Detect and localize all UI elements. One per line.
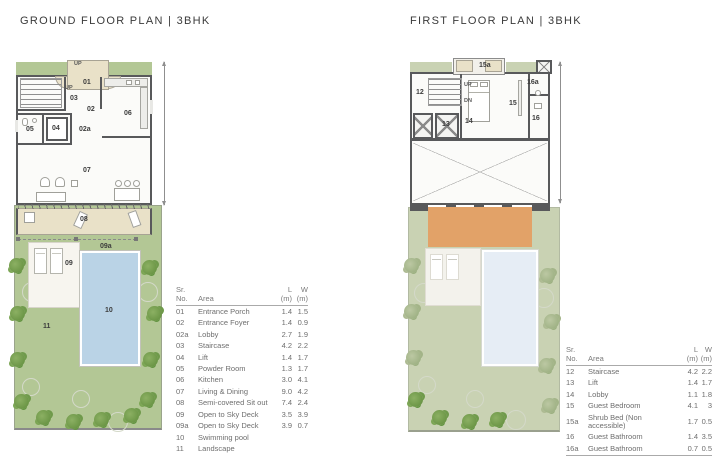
- legend-cell: 1.8: [698, 389, 712, 400]
- legend-cell: Open to Sky Deck: [198, 421, 272, 432]
- first-floor-plan: 15a 12 UP DN 13 14 15 16 16a: [408, 58, 570, 458]
- room-label: 03: [70, 95, 78, 102]
- legend-cell: 04: [176, 352, 198, 363]
- tree-icon: [94, 412, 109, 427]
- legend-cell: 0.9: [292, 318, 308, 329]
- legend-cell: Semi-covered Sit out: [198, 398, 272, 409]
- room-label: 09a: [100, 243, 112, 250]
- tree-icon: [406, 350, 421, 365]
- wall: [18, 143, 72, 145]
- tree-icon: [143, 352, 158, 367]
- wall: [70, 113, 72, 145]
- legend-cell: Staircase: [588, 366, 680, 378]
- pergola-post: [446, 203, 456, 207]
- legend-row: 16aGuest Bathroom0.70.5: [566, 443, 712, 455]
- legend-cell: Landscape: [198, 444, 272, 455]
- planter-box: [456, 60, 473, 72]
- tree-icon: [539, 358, 554, 373]
- tree-icon: [14, 394, 29, 409]
- legend-cell: Powder Room: [198, 363, 272, 374]
- post: [74, 237, 78, 241]
- legend-cell: 15a: [566, 412, 588, 432]
- wardrobe: [518, 80, 522, 116]
- tree-icon: [36, 410, 51, 425]
- col-area: Area: [588, 346, 680, 366]
- legend-row: 02aLobby2.71.9: [176, 329, 308, 340]
- wall: [42, 113, 44, 145]
- legend-cell: [292, 444, 308, 455]
- legend-cell: [292, 432, 308, 443]
- room-label: 16a: [527, 79, 539, 86]
- legend-row: 08Semi-covered Sit out7.42.4: [176, 398, 308, 409]
- legend-cell: 3: [698, 401, 712, 412]
- swimming-pool-below: [482, 250, 538, 366]
- legend-row: 13Lift1.41.7: [566, 378, 712, 389]
- legend-cell: 3.9: [272, 421, 292, 432]
- col-width: W (m): [698, 346, 712, 366]
- window: [15, 120, 18, 132]
- legend-cell: Lobby: [198, 329, 272, 340]
- basin-icon: [535, 90, 541, 96]
- legend-cell: Open to Sky Deck: [198, 409, 272, 420]
- room-label: 09: [65, 260, 73, 267]
- legend-cell: 3.5: [698, 432, 712, 443]
- legend-cell: Swimming pool: [198, 432, 272, 443]
- legend-cell: 4.1: [292, 375, 308, 386]
- room-label: 14: [465, 118, 473, 125]
- legend-cell: 2.2: [698, 366, 712, 378]
- legend-cell: 1.4: [680, 378, 698, 389]
- shrub-outline-icon: [138, 282, 158, 302]
- legend-row: 10Swimming pool: [176, 432, 308, 443]
- legend-row: 09Open to Sky Deck3.53.9: [176, 409, 308, 420]
- legend-cell: 1.7: [292, 352, 308, 363]
- legend-cell: 02a: [176, 329, 198, 340]
- room-label: 02: [87, 106, 95, 113]
- legend-row: 05Powder Room1.31.7: [176, 363, 308, 374]
- legend-row: 15Guest Bedroom4.13: [566, 401, 712, 412]
- pergola-post: [474, 203, 484, 207]
- pergola-roof: [428, 207, 532, 247]
- legend-cell: 06: [176, 375, 198, 386]
- dining-chair: [124, 180, 131, 187]
- legend-cell: 1.4: [272, 352, 292, 363]
- side-table: [71, 180, 78, 187]
- room-label: 12: [416, 89, 424, 96]
- legend-cell: 1.4: [272, 318, 292, 329]
- legend-cell: 1.7: [698, 378, 712, 389]
- tree-icon: [9, 258, 24, 273]
- legend-cell: 09: [176, 409, 198, 420]
- tree-icon: [124, 408, 139, 423]
- legend-row: 01Entrance Porch1.41.5: [176, 306, 308, 318]
- legend-cell: [272, 444, 292, 455]
- legend-cell: 3.9: [292, 409, 308, 420]
- legend-cell: 02: [176, 318, 198, 329]
- tree-icon: [462, 414, 477, 429]
- legend-header-row: Sr. No. Area L (m) W (m): [566, 346, 712, 366]
- tree-icon: [147, 306, 162, 321]
- tree-icon: [10, 306, 25, 321]
- floor-plan-sheet: GROUND FLOOR PLAN | 3BHK: [0, 0, 717, 463]
- armchair: [40, 177, 50, 187]
- sofa: [36, 192, 66, 202]
- col-length: L (m): [680, 346, 698, 366]
- legend-row: 12Staircase4.22.2: [566, 366, 712, 378]
- dining-chair: [133, 180, 140, 187]
- legend-cell: Guest Bathroom: [588, 432, 680, 443]
- pergola-post: [502, 203, 512, 207]
- shrub-outline-icon: [72, 390, 90, 408]
- legend-cell: 3.5: [272, 409, 292, 420]
- dimension-line: [164, 62, 165, 205]
- legend-cell: 16a: [566, 443, 588, 455]
- room-label: 08: [80, 216, 88, 223]
- legend-cell: 16: [566, 432, 588, 443]
- legend-row: 03Staircase4.22.2: [176, 341, 308, 352]
- legend-row: 04Lift1.41.7: [176, 352, 308, 363]
- tree-icon: [408, 392, 423, 407]
- lift-shaft: [413, 113, 433, 139]
- tree-icon: [10, 352, 25, 367]
- legend-cell: [272, 432, 292, 443]
- wall: [18, 113, 72, 115]
- legend-cell: 4.2: [272, 341, 292, 352]
- shrub-outline-icon: [418, 376, 436, 394]
- tree-icon: [544, 314, 559, 329]
- legend-cell: Lift: [588, 378, 680, 389]
- legend-row: 16Guest Bathroom1.43.5: [566, 432, 712, 443]
- legend-cell: 1.4: [272, 306, 292, 318]
- basin-icon: [32, 118, 37, 123]
- room-label: 02a: [79, 126, 91, 133]
- shrub-outline-icon: [506, 410, 526, 430]
- tree-icon: [542, 398, 557, 413]
- tree-icon: [140, 392, 155, 407]
- pillow: [480, 82, 488, 87]
- legend-cell: 09a: [176, 421, 198, 432]
- legend-cell: 1.5: [292, 306, 308, 318]
- legend-cell: 1.3: [272, 363, 292, 374]
- tree-icon: [404, 304, 419, 319]
- wall: [102, 136, 150, 138]
- room-label: UP: [74, 62, 82, 68]
- legend-cell: 11: [176, 444, 198, 455]
- legend-cell: 2.7: [272, 329, 292, 340]
- legend-cell: 7.4: [272, 398, 292, 409]
- wall: [64, 77, 66, 109]
- room-label: 11: [43, 323, 50, 330]
- legend-cell: Entrance Porch: [198, 306, 272, 318]
- room-label: UP: [464, 83, 472, 89]
- tree-icon: [404, 258, 419, 273]
- ground-floor-legend: Sr. No. Area L (m) W (m) 01Entrance Porc…: [176, 286, 308, 455]
- legend-cell: 1.9: [292, 329, 308, 340]
- window: [150, 100, 153, 114]
- legend-header-row: Sr. No. Area L (m) W (m): [176, 286, 308, 306]
- legend-cell: Lobby: [588, 389, 680, 400]
- room-label: DN: [464, 99, 472, 105]
- legend-cell: Guest Bedroom: [588, 401, 680, 412]
- col-srno: Sr. No.: [566, 346, 588, 366]
- legend-row: 11Landscape: [176, 444, 308, 455]
- room-label: 05: [26, 126, 34, 133]
- legend-cell: Living & Dining: [198, 386, 272, 397]
- ground-floor-plan: UP 01 UP 03 02 06 05 04 02a 07 08 09a 09…: [14, 60, 176, 440]
- sitout-table: [24, 212, 35, 223]
- post: [16, 237, 20, 241]
- wall-stub: [410, 203, 428, 211]
- legend-row: 02Entrance Foyer1.40.9: [176, 318, 308, 329]
- tree-icon: [490, 412, 505, 427]
- legend-cell: 2.2: [292, 341, 308, 352]
- legend-cell: Kitchen: [198, 375, 272, 386]
- col-width: W (m): [292, 286, 308, 306]
- legend-cell: 0.7: [680, 443, 698, 455]
- dining-chair: [115, 180, 122, 187]
- staircase-treads: [20, 78, 62, 108]
- dimension-line: [560, 62, 561, 203]
- legend-cell: 4.2: [292, 386, 308, 397]
- first-floor-title: FIRST FLOOR PLAN | 3BHK: [410, 15, 582, 27]
- bed-sheet-line: [469, 92, 489, 93]
- legend-cell: Shrub Bed (Non accessible): [588, 412, 680, 432]
- legend-cell: 13: [566, 378, 588, 389]
- sun-lounger: [430, 254, 443, 280]
- armchair: [55, 177, 65, 187]
- shrub-outline-icon: [22, 378, 40, 396]
- room-label: 04: [52, 125, 60, 132]
- hob-icon: [135, 80, 140, 85]
- legend-cell: 4.2: [680, 366, 698, 378]
- room-label: 06: [124, 110, 132, 117]
- tree-icon: [432, 410, 447, 425]
- sink-icon: [126, 80, 132, 85]
- room-label: 01: [83, 79, 91, 86]
- legend-cell: 07: [176, 386, 198, 397]
- staircase-treads: [428, 78, 462, 106]
- legend-cell: Staircase: [198, 341, 272, 352]
- legend-cell: 0.7: [292, 421, 308, 432]
- wall-stub: [532, 203, 550, 211]
- legend-cell: 2.4: [292, 398, 308, 409]
- tree-icon: [142, 260, 157, 275]
- legend-cell: Guest Bathroom: [588, 443, 680, 455]
- first-floor-legend: Sr. No. Area L (m) W (m) 12Staircase4.22…: [566, 346, 712, 456]
- shrub-outline-icon: [466, 390, 484, 408]
- room-label: 07: [83, 167, 91, 174]
- legend-cell: 1.1: [680, 389, 698, 400]
- legend-cell: 03: [176, 341, 198, 352]
- legend-cell: 10: [176, 432, 198, 443]
- room-label: 16: [532, 115, 540, 122]
- legend-cell: 0.5: [698, 412, 712, 432]
- tree-icon: [540, 268, 555, 283]
- legend-row: 15aShrub Bed (Non accessible)1.70.5: [566, 412, 712, 432]
- col-srno: Sr. No.: [176, 286, 198, 306]
- room-label: UP: [65, 86, 73, 92]
- kitchen-counter-side: [140, 87, 148, 129]
- sun-lounger: [446, 254, 459, 280]
- legend-cell: 08: [176, 398, 198, 409]
- ground-floor-title: GROUND FLOOR PLAN | 3BHK: [20, 15, 211, 27]
- toilet-icon: [22, 118, 28, 126]
- legend-cell: 0.5: [698, 443, 712, 455]
- col-area: Area: [198, 286, 272, 306]
- legend-cell: 05: [176, 363, 198, 374]
- sun-lounger: [34, 248, 47, 274]
- room-label: 15a: [479, 62, 491, 69]
- legend-cell: Lift: [198, 352, 272, 363]
- col-length: L (m): [272, 286, 292, 306]
- legend-row: 14Lobby1.11.8: [566, 389, 712, 400]
- legend-cell: 3.0: [272, 375, 292, 386]
- legend-row: 06Kitchen3.04.1: [176, 375, 308, 386]
- legend-cell: 4.1: [680, 401, 698, 412]
- legend-cell: 1.7: [292, 363, 308, 374]
- room-label: 15: [509, 100, 517, 107]
- duct-box: [536, 60, 552, 74]
- wall: [18, 109, 66, 111]
- sun-lounger: [50, 248, 63, 274]
- toilet-icon: [534, 103, 542, 109]
- legend-cell: 12: [566, 366, 588, 378]
- room-label: 10: [105, 307, 113, 314]
- legend-cell: 01: [176, 306, 198, 318]
- legend-cell: 1.4: [680, 432, 698, 443]
- legend-cell: 14: [566, 389, 588, 400]
- legend-cell: 1.7: [680, 412, 698, 432]
- dining-table: [114, 188, 140, 201]
- legend-cell: 9.0: [272, 386, 292, 397]
- post: [134, 237, 138, 241]
- legend-row: 09aOpen to Sky Deck3.90.7: [176, 421, 308, 432]
- legend-row: 07Living & Dining9.04.2: [176, 386, 308, 397]
- wall: [100, 77, 102, 109]
- folding-door-zigzag: [18, 204, 150, 209]
- legend-cell: 15: [566, 401, 588, 412]
- legend-cell: Entrance Foyer: [198, 318, 272, 329]
- tree-icon: [66, 414, 81, 429]
- room-label: 13: [442, 121, 450, 128]
- open-to-below-void: [413, 143, 547, 201]
